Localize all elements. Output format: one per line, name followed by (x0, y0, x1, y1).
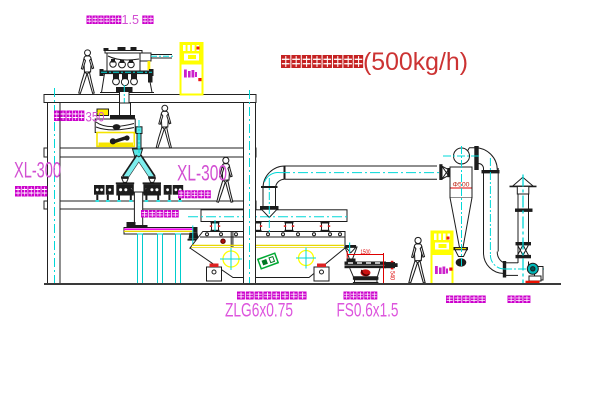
svg-text:(500kg/h): (500kg/h) (363, 48, 468, 76)
svg-text:1.5: 1.5 (122, 12, 140, 27)
svg-text:ZLG6x0.75: ZLG6x0.75 (225, 301, 293, 322)
svg-text:350: 350 (86, 109, 105, 125)
svg-text:FS0.6x1.5: FS0.6x1.5 (337, 301, 399, 322)
svg-text:XL-300: XL-300 (177, 161, 227, 186)
svg-text:XL-300: XL-300 (14, 158, 61, 183)
svg-text:540: 540 (389, 271, 396, 280)
svg-text:1500: 1500 (361, 249, 371, 256)
